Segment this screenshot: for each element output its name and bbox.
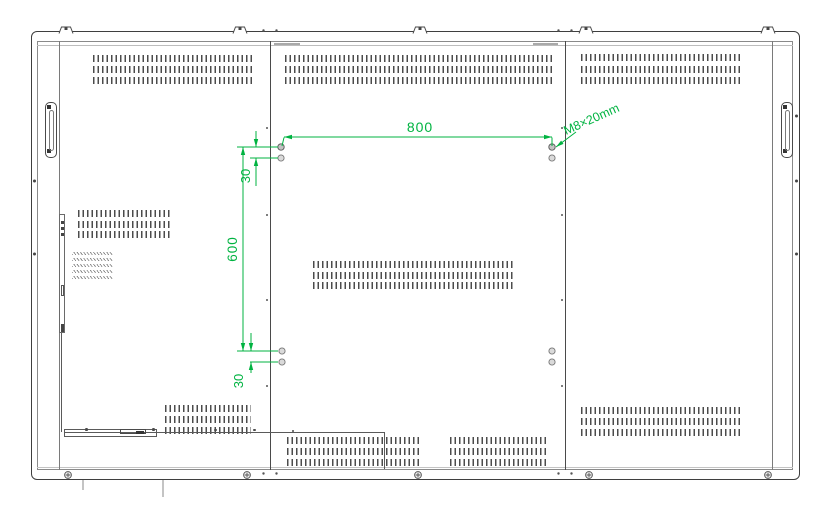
mounting-holes	[278, 144, 555, 365]
mounting-hole-top-right-2	[549, 155, 555, 161]
rear-panel-drawing: 800 600 30 30 M8×20mm	[0, 0, 823, 511]
mounting-hole-bottom-right-2	[549, 359, 555, 365]
screw-icon	[415, 472, 422, 479]
dimension-800-label: 800	[407, 119, 433, 135]
top-bracket-tabs	[59, 27, 775, 34]
bottom-screws	[65, 472, 772, 479]
screw-icon	[244, 472, 251, 479]
screw-icon	[586, 472, 593, 479]
divider-dots	[262, 29, 572, 474]
screw-icon	[65, 472, 72, 479]
dimension-600-label: 600	[225, 236, 240, 262]
edge-screw-dots	[33, 115, 798, 256]
dimension-30-top-label: 30	[238, 169, 253, 183]
mounting-hole-bottom-left-2	[279, 359, 285, 365]
mounting-hole-top-left-1	[278, 144, 284, 150]
dimension-lines	[237, 131, 576, 373]
screw-spec-label: M8×20mm	[562, 101, 622, 138]
screw-icon	[765, 472, 772, 479]
mounting-hole-bottom-right-1	[549, 348, 555, 354]
mounting-hole-top-left-2	[278, 155, 284, 161]
bottom-edge-ticks	[83, 480, 163, 497]
dimension-arrowheads	[241, 135, 564, 370]
dimension-30-bottom-label: 30	[231, 374, 246, 388]
mounting-hole-bottom-left-1	[279, 348, 285, 354]
dimension-overlay: 800 600 30 30 M8×20mm	[0, 0, 823, 511]
